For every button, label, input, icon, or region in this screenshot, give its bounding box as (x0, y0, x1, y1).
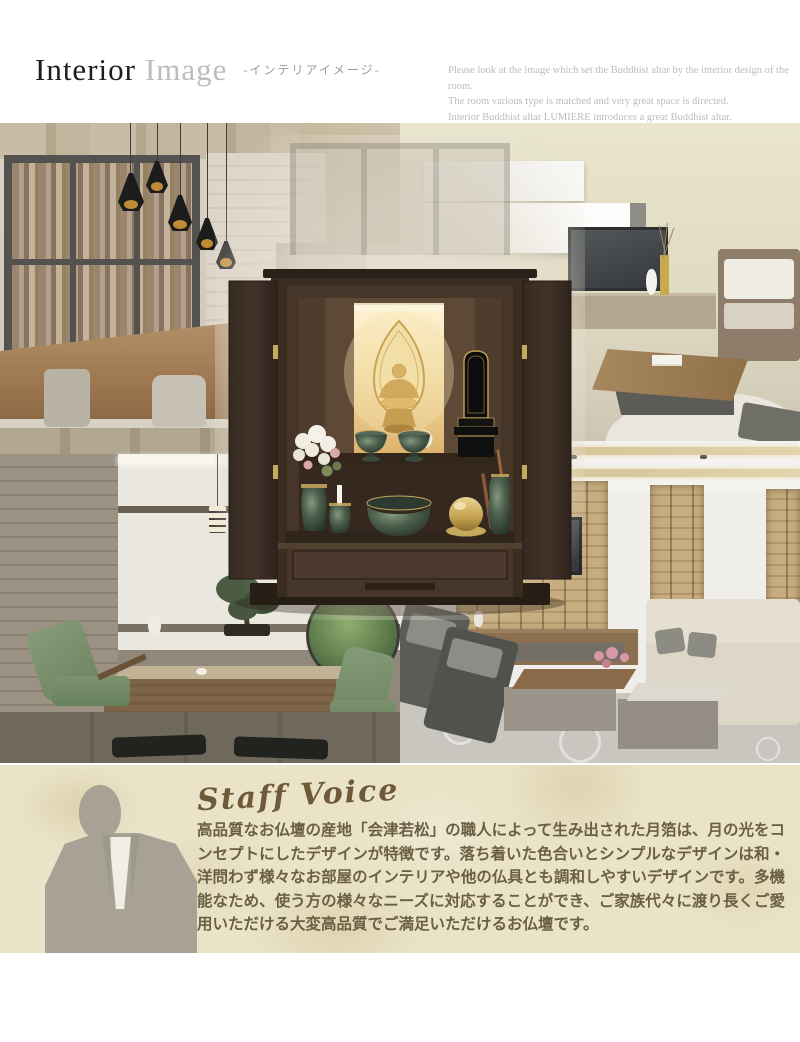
chair-cushion (446, 637, 504, 679)
base-lip (277, 543, 523, 549)
sofa-pillow (654, 627, 685, 655)
floor-pillow (737, 402, 800, 441)
lamp-cord (207, 123, 208, 220)
crown-molding (263, 269, 537, 278)
bonsai-pot (224, 624, 270, 636)
buddha-statue (344, 311, 454, 435)
page: InteriorImage-インテリアイメージ- Please look at … (0, 0, 800, 1042)
drawer-notch (365, 583, 435, 590)
silhouette-head (79, 785, 121, 839)
flower (620, 653, 629, 662)
lamp-cord (157, 123, 158, 163)
wood-sofa (718, 249, 800, 361)
intro-text: Please look at the image which set the B… (448, 63, 796, 125)
stone-niche (766, 489, 800, 611)
sofa-seat (724, 303, 794, 329)
green-armchair-seat (52, 676, 130, 706)
altar-cabinet (229, 269, 571, 597)
hinge (522, 345, 527, 359)
small-vase (148, 616, 161, 636)
sofa-cushion (724, 259, 794, 299)
flower (602, 659, 611, 668)
flower (606, 647, 618, 659)
hinge (522, 465, 527, 479)
lamp-cord (130, 123, 131, 175)
lamp-cord (180, 123, 181, 197)
white-vase (646, 269, 657, 295)
backdrop-window (290, 143, 510, 255)
coffee-table-side (618, 699, 718, 749)
section-title-jp: -インテリアイメージ- (243, 63, 380, 77)
coffee-table-side (504, 687, 616, 731)
books (652, 355, 682, 364)
flower-vase (301, 484, 327, 531)
door-left (229, 281, 277, 579)
floor-cushion (234, 736, 329, 759)
chair (152, 375, 206, 427)
coffee-table-top (626, 683, 735, 701)
gold-vase (660, 255, 669, 295)
intro-line-1: Please look at the image which set the B… (448, 63, 796, 94)
staff-voice-section: Staff Voice 高品質なお仏壇の産地「会津若松」の職人によって生み出され… (0, 765, 800, 953)
tea-cup (196, 668, 207, 675)
section-title: InteriorImage-インテリアイメージ- (35, 52, 381, 88)
chair (44, 369, 90, 427)
product-photo-altar (215, 135, 585, 620)
hinge (273, 465, 278, 479)
section-title-en-primary: Interior (35, 52, 136, 87)
section-title-en-secondary: Image (145, 52, 227, 87)
altar-illustration (215, 135, 585, 620)
intro-line-2: The room various type is matched and ver… (448, 94, 796, 110)
staff-silhouette (45, 785, 197, 953)
staff-voice-heading: Staff Voice (196, 773, 400, 819)
staff-voice-body: 高品質なお仏壇の産地「会津若松」の職人によって生み出された月箔は、月の光をコンセ… (197, 819, 785, 937)
hinge (273, 345, 278, 359)
drawer-front (293, 551, 507, 579)
interior-collage (0, 123, 800, 763)
door-right (523, 281, 571, 579)
pink-flowers (588, 647, 640, 677)
window-mullion (12, 259, 192, 265)
floor-cushion (112, 734, 207, 757)
low-table-top (114, 666, 354, 679)
stone-niche (650, 485, 704, 617)
spotlight (700, 455, 707, 459)
sofa-pillow (687, 632, 717, 659)
